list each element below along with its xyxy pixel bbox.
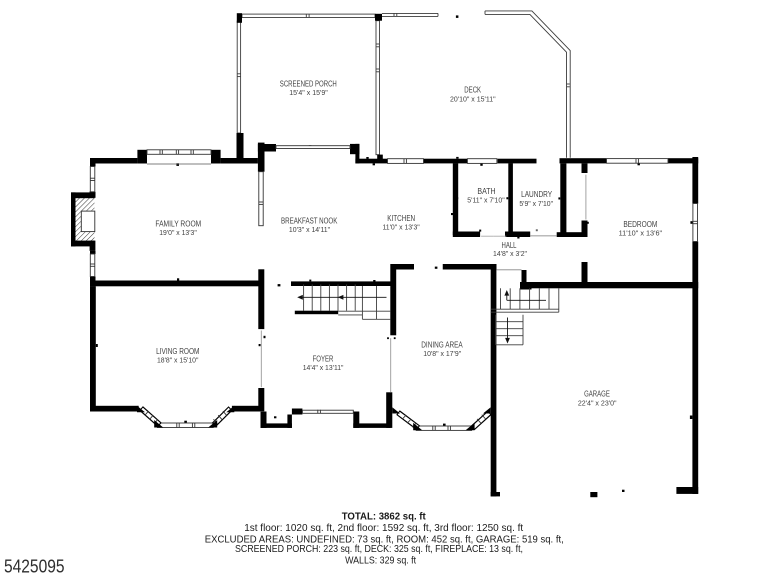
svg-text:14'4" x 13'11": 14'4" x 13'11" (303, 363, 344, 372)
svg-text:WALLS: 329 sq. ft: WALLS: 329 sq. ft (345, 556, 416, 567)
svg-text:15'4" x 15'9": 15'4" x 15'9" (289, 88, 328, 97)
svg-text:22'4" x 23'0": 22'4" x 23'0" (578, 399, 617, 408)
svg-text:14'8" x 3'2": 14'8" x 3'2" (493, 249, 527, 258)
svg-text:11'10" x 13'6": 11'10" x 13'6" (619, 229, 663, 238)
svg-text:LIVING ROOM: LIVING ROOM (156, 347, 200, 356)
svg-text:DECK: DECK (464, 85, 481, 94)
svg-text:LAUNDRY: LAUNDRY (521, 190, 553, 199)
svg-text:FAMILY ROOM: FAMILY ROOM (155, 220, 201, 229)
svg-text:10'8" x 17'9": 10'8" x 17'9" (423, 349, 461, 358)
svg-text:19'0" x 13'3": 19'0" x 13'3" (159, 228, 197, 237)
svg-text:GARAGE: GARAGE (584, 390, 610, 399)
svg-text:1st floor: 1020 sq. ft, 2nd fl: 1st floor: 1020 sq. ft, 2nd floor: 1592 … (244, 523, 523, 534)
svg-text:18'8" x 15'10": 18'8" x 15'10" (157, 356, 199, 365)
svg-text:5'11" x 7'10": 5'11" x 7'10" (467, 195, 505, 204)
svg-text:20'10" x 15'11": 20'10" x 15'11" (450, 94, 496, 103)
svg-text:11'0" x 13'3": 11'0" x 13'3" (382, 222, 420, 231)
svg-text:5'9" x 7'10": 5'9" x 7'10" (519, 199, 553, 208)
svg-text:TOTAL: 3862 sq. ft: TOTAL: 3862 sq. ft (342, 511, 427, 522)
svg-text:5425095: 5425095 (4, 556, 65, 576)
svg-text:SCREENED PORCH: 223 sq. ft, DE: SCREENED PORCH: 223 sq. ft, DECK: 325 sq… (235, 544, 523, 555)
svg-text:10'3" x 14'11": 10'3" x 14'11" (289, 225, 330, 234)
